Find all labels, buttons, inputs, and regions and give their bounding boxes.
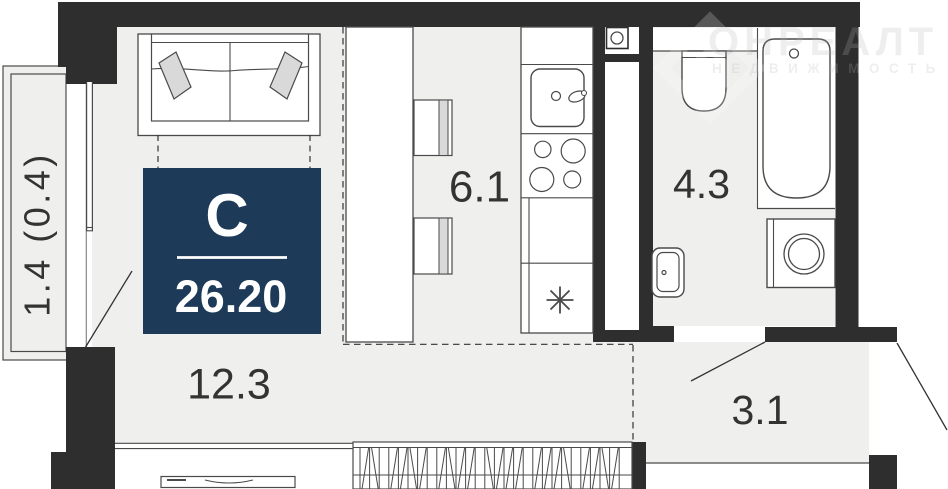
svg-text:6.1: 6.1 [449, 163, 510, 212]
svg-text:4.3: 4.3 [673, 161, 730, 207]
svg-text:С: С [205, 182, 248, 249]
svg-text:26.20: 26.20 [175, 271, 288, 322]
svg-text:НЕДВИЖИМОСТЬ: НЕДВИЖИМОСТЬ [712, 61, 945, 76]
svg-text:ОНРЕАЛТ: ОНРЕАЛТ [708, 20, 938, 64]
svg-text:1.4 (0.4): 1.4 (0.4) [17, 151, 58, 317]
svg-text:12.3: 12.3 [187, 360, 271, 408]
svg-text:3.1: 3.1 [732, 387, 789, 433]
